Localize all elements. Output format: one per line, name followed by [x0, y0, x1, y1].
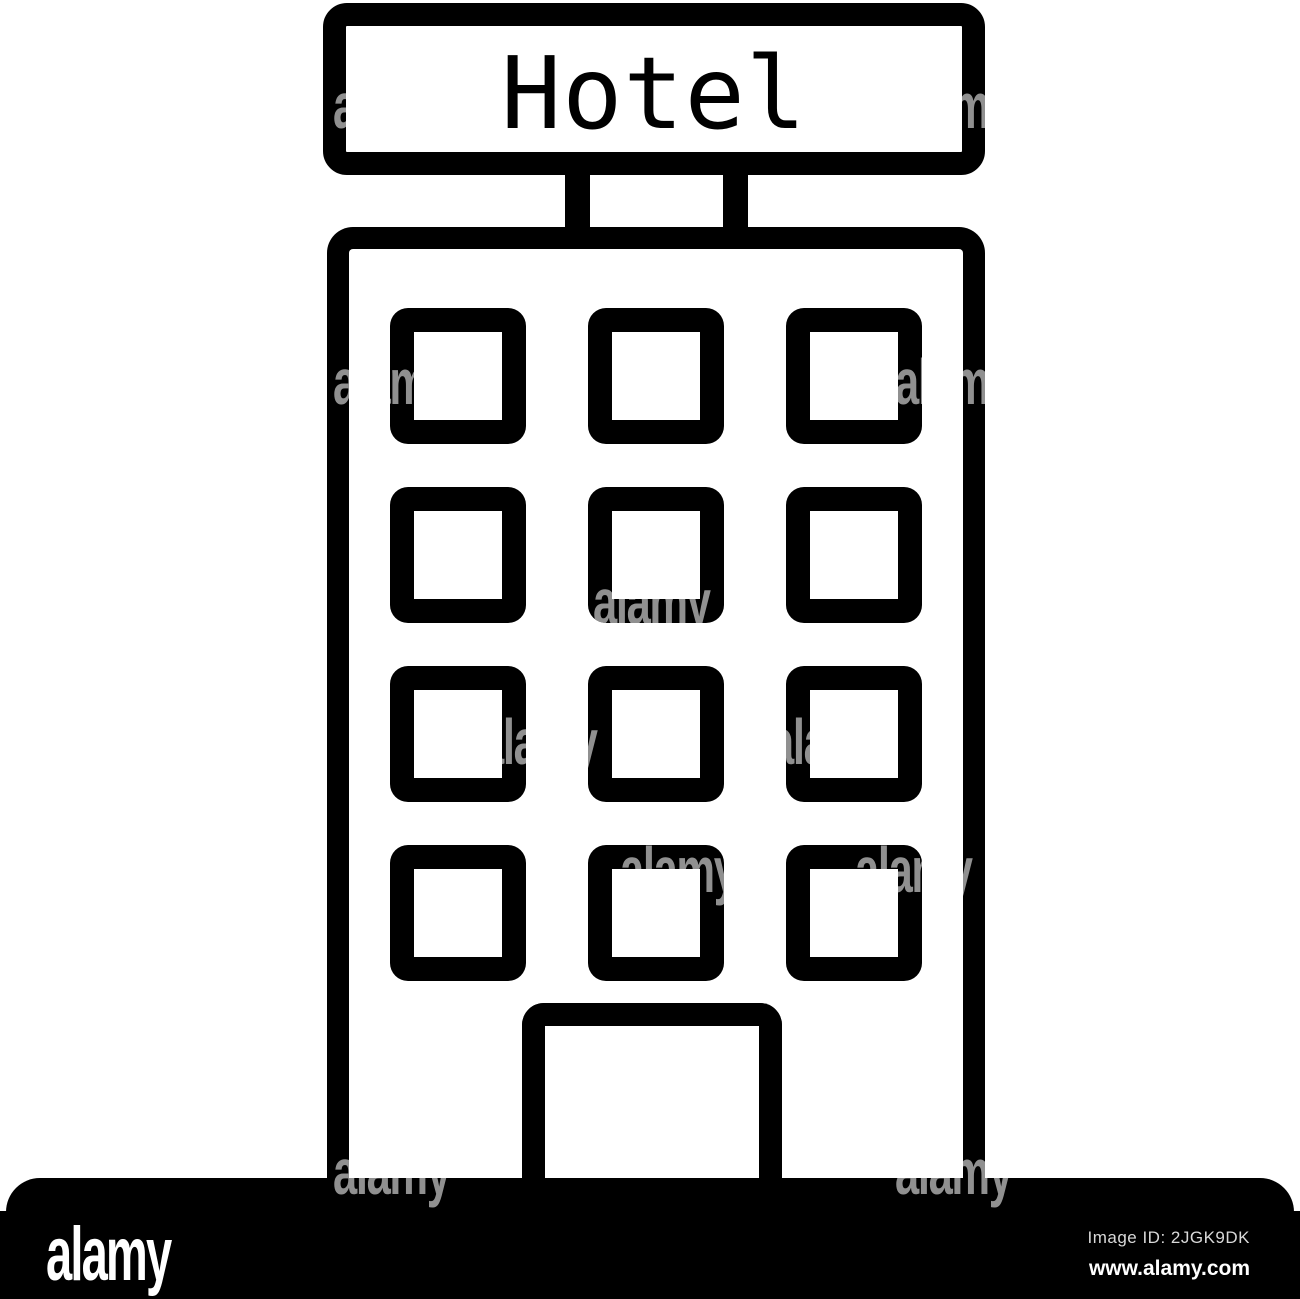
sign-post-left [565, 170, 590, 232]
alamy-watermark-7: alamy [770, 710, 887, 774]
website-text: www.alamy.com [1087, 1256, 1250, 1281]
sign-post-right [723, 170, 748, 232]
alamy-watermark-9: alamy [855, 838, 972, 902]
hotel-sign-label: Hotel [501, 34, 807, 144]
alamy-logo: alamy [46, 1217, 170, 1293]
building-window-r4-c1 [390, 845, 526, 981]
alamy-watermark-4: alamy [895, 350, 1012, 414]
stock-image-page: Hotel alamyalamyalamyalamyalamyalamyalam… [0, 0, 1300, 1299]
alamy-watermark-2: alamy [895, 74, 1012, 138]
alamy-watermark-11: alamy [895, 1140, 1012, 1204]
image-id-text: Image ID: 2JGK9DK [1087, 1228, 1250, 1248]
alamy-watermark-10: alamy [333, 1140, 450, 1204]
alamy-watermark-1: alamy [333, 74, 450, 138]
alamy-watermark-5: alamy [593, 570, 710, 634]
alamy-watermark-6: alamy [480, 710, 597, 774]
building-window-r3-c2 [588, 666, 724, 802]
building-door [522, 1003, 782, 1183]
building-window-r2-c1 [390, 487, 526, 623]
footer-info: Image ID: 2JGK9DK www.alamy.com [1087, 1228, 1250, 1282]
alamy-watermark-8: alamy [620, 838, 737, 902]
building-window-r1-c2 [588, 308, 724, 444]
footer-bar: alamy Image ID: 2JGK9DK www.alamy.com [0, 1211, 1300, 1299]
building-window-r2-c3 [786, 487, 922, 623]
alamy-watermark-3: alamy [333, 350, 450, 414]
